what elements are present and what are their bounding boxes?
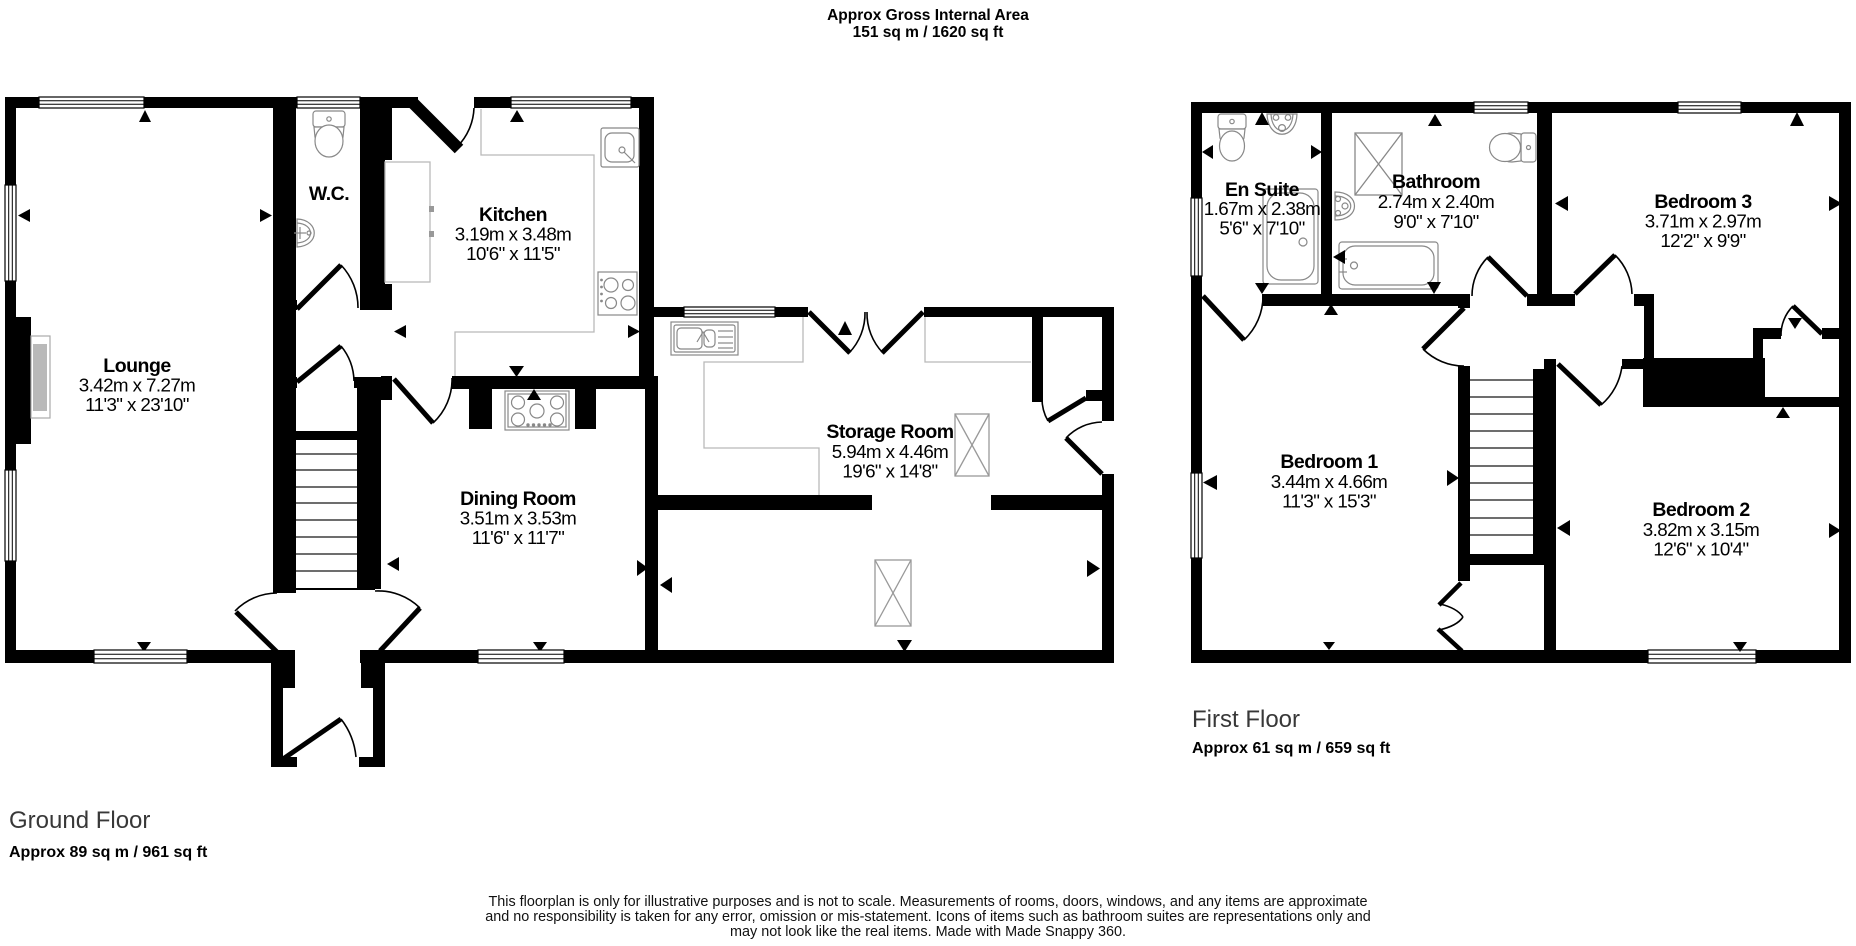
svg-text:10'6" x 11'5": 10'6" x 11'5"	[466, 243, 560, 264]
svg-text:19'6" x 14'8": 19'6" x 14'8"	[842, 461, 937, 482]
svg-text:3.51m x 3.53m: 3.51m x 3.53m	[460, 508, 576, 529]
svg-text:3.42m x 7.27m: 3.42m x 7.27m	[79, 375, 195, 396]
svg-text:3.71m x 2.97m: 3.71m x 2.97m	[1645, 211, 1761, 232]
svg-text:First Floor: First Floor	[1192, 706, 1300, 733]
svg-text:may not look like the real ite: may not look like the real items. Made w…	[730, 924, 1126, 940]
svg-text:Approx Gross Internal Area: Approx Gross Internal Area	[827, 7, 1029, 24]
svg-text:W.C.: W.C.	[309, 183, 349, 205]
svg-text:Storage Room: Storage Room	[826, 421, 953, 443]
svg-text:1.67m x 2.38m: 1.67m x 2.38m	[1204, 198, 1320, 219]
svg-text:Bedroom 2: Bedroom 2	[1652, 499, 1750, 521]
svg-text:11'3" x 15'3": 11'3" x 15'3"	[1282, 491, 1376, 512]
svg-text:3.44m x 4.66m: 3.44m x 4.66m	[1271, 471, 1387, 492]
svg-text:11'3" x 23'10": 11'3" x 23'10"	[85, 394, 189, 415]
svg-text:Bedroom 1: Bedroom 1	[1280, 451, 1378, 473]
svg-text:5.94m x 4.46m: 5.94m x 4.46m	[832, 441, 948, 462]
svg-text:12'6" x 10'4": 12'6" x 10'4"	[1653, 539, 1748, 560]
svg-text:and no responsibility is taken: and no responsibility is taken for any e…	[485, 909, 1370, 925]
svg-text:11'6" x 11'7": 11'6" x 11'7"	[472, 527, 564, 548]
svg-text:5'6" x 7'10": 5'6" x 7'10"	[1219, 218, 1304, 239]
svg-text:12'2" x 9'9": 12'2" x 9'9"	[1660, 230, 1745, 251]
svg-text:Ground Floor: Ground Floor	[9, 807, 150, 834]
svg-text:This floorplan is only for ill: This floorplan is only for illustrative …	[488, 894, 1367, 910]
svg-text:3.19m x 3.48m: 3.19m x 3.48m	[455, 224, 571, 245]
svg-text:3.82m x 3.15m: 3.82m x 3.15m	[1643, 519, 1759, 540]
svg-text:Bathroom: Bathroom	[1392, 171, 1480, 193]
svg-text:Approx 61 sq m / 659 sq ft: Approx 61 sq m / 659 sq ft	[1192, 740, 1391, 757]
svg-text:Approx 89 sq m / 961 sq ft: Approx 89 sq m / 961 sq ft	[9, 844, 208, 861]
svg-text:9'0" x 7'10": 9'0" x 7'10"	[1393, 211, 1478, 232]
svg-text:151 sq m / 1620 sq ft: 151 sq m / 1620 sq ft	[853, 24, 1004, 41]
svg-text:2.74m x 2.40m: 2.74m x 2.40m	[1378, 191, 1494, 212]
